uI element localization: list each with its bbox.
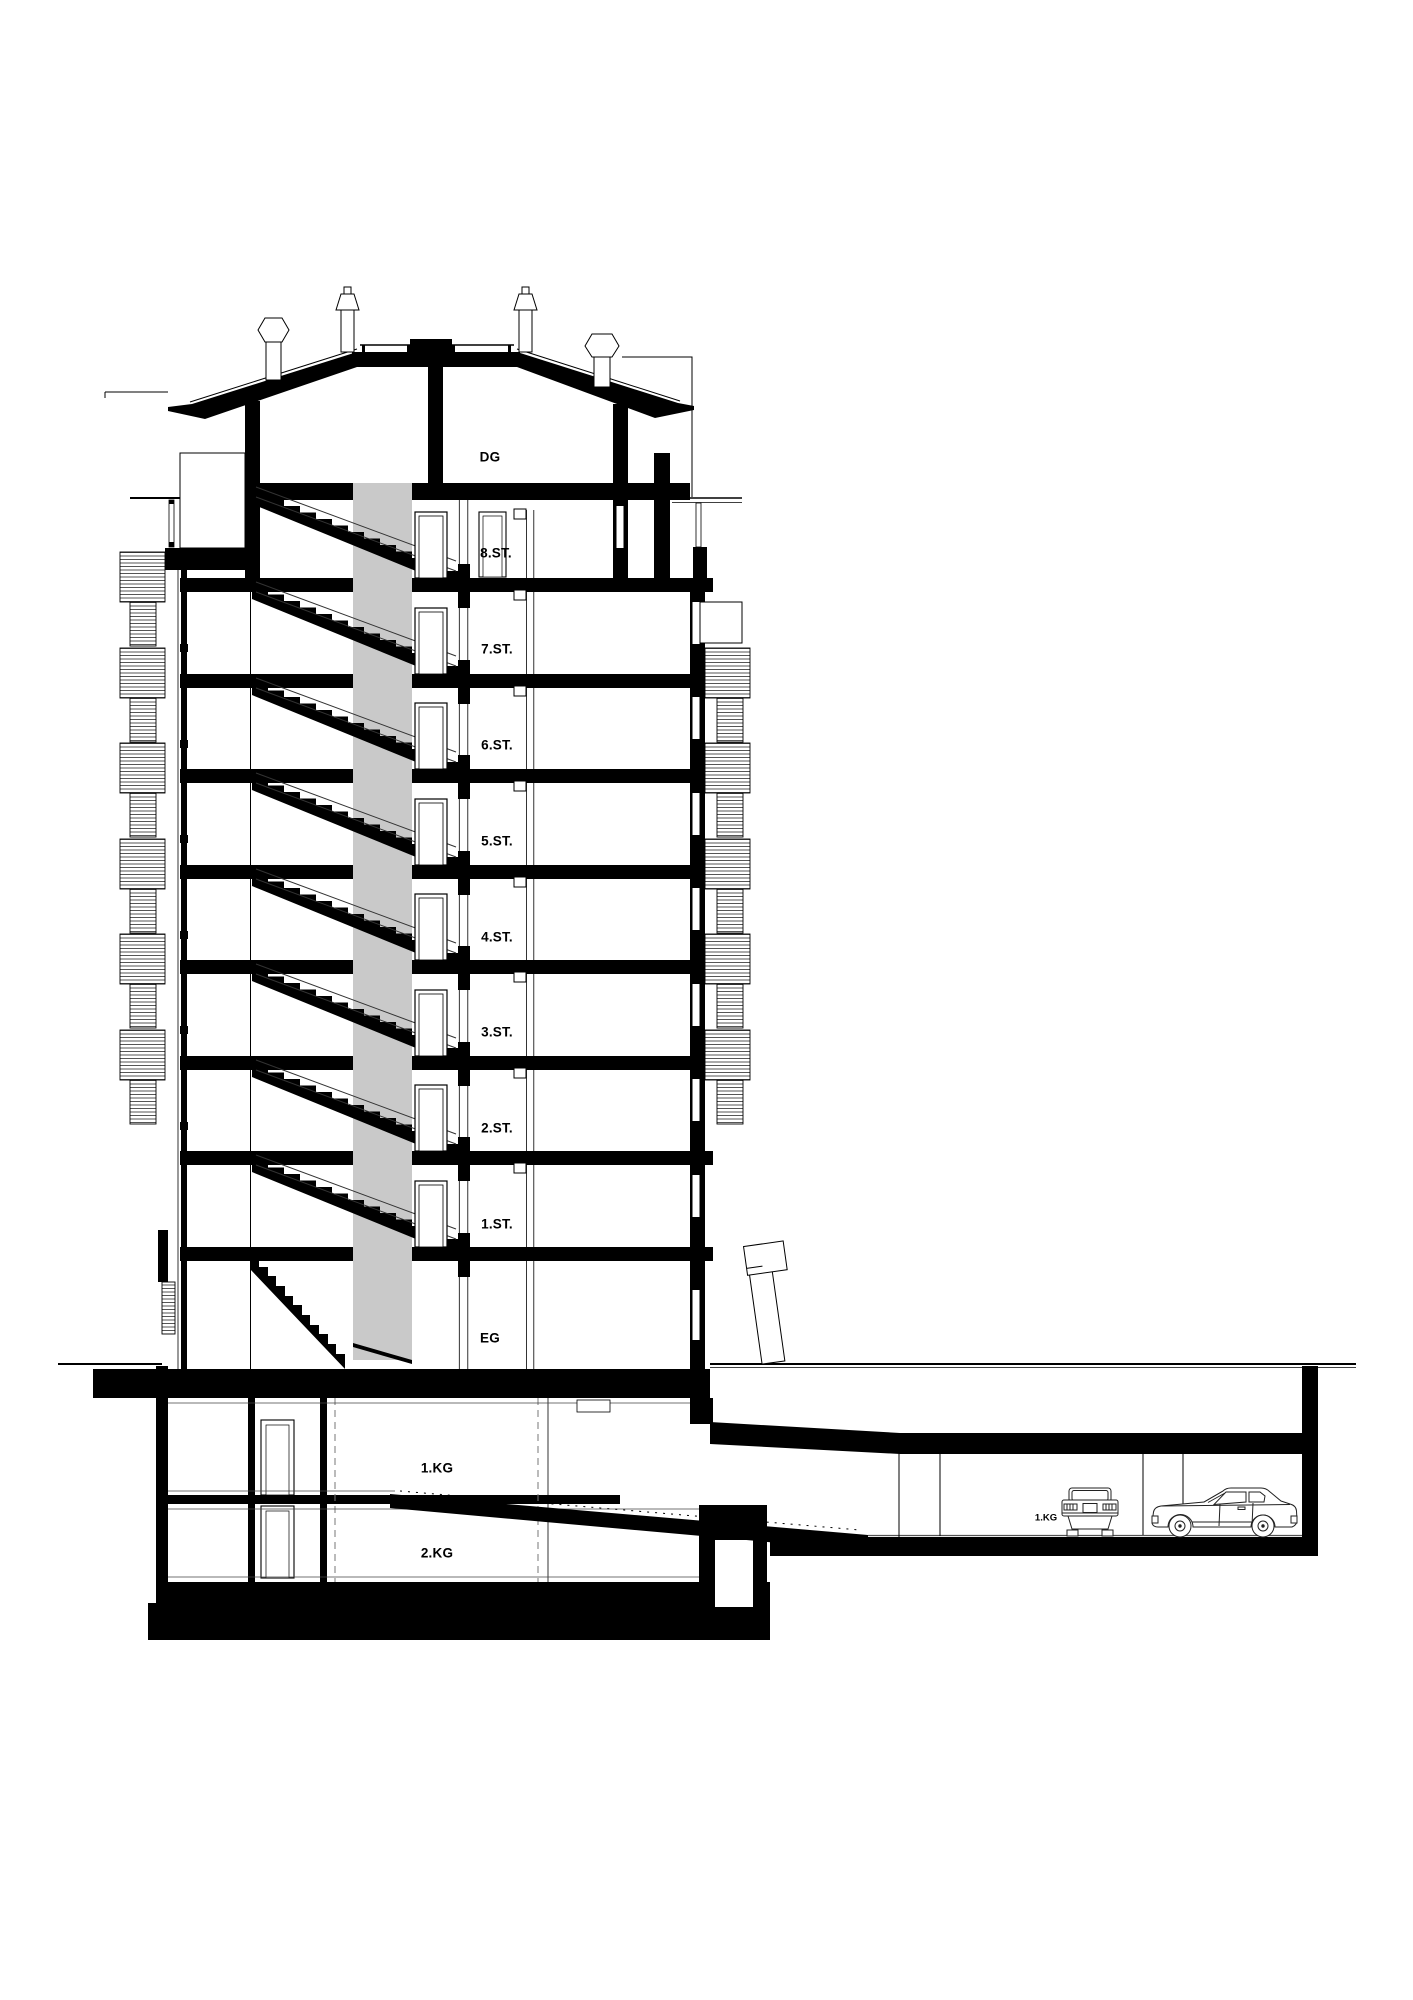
floor-label-1kg: 1.KG — [421, 1461, 453, 1476]
floor-label-2st: 2.ST. — [481, 1121, 513, 1136]
roof-hatch — [410, 339, 452, 352]
roof-vent-icon — [336, 287, 359, 352]
car-side-icon — [1152, 1488, 1297, 1537]
roof-vent-icon — [514, 287, 537, 352]
balcony-shutter-boxes — [120, 552, 165, 1124]
garage-ceiling — [710, 1422, 1318, 1454]
basement-grate — [162, 1282, 175, 1334]
floor-label-6st: 6.ST. — [481, 738, 513, 753]
foundation — [148, 1582, 770, 1640]
floor-label-eg: EG — [480, 1331, 500, 1346]
building-section-linework — [0, 0, 1413, 2000]
garage-level-label: 1.KG — [1035, 1513, 1057, 1524]
floor-label-8st: 8.ST. — [480, 546, 512, 561]
balcony-shutter-boxes — [705, 648, 750, 1124]
top-balcony-box — [180, 453, 245, 548]
facade-windows — [617, 506, 700, 1340]
chimney-icon — [258, 318, 289, 380]
floor-label-5st: 5.ST. — [481, 834, 513, 849]
right-facade — [622, 357, 750, 1124]
section-drawing-page: DG 8.ST. 7.ST. 6.ST. 5.ST. 4.ST. 3.ST. 2… — [0, 0, 1413, 2000]
garage-right-wall — [1302, 1366, 1318, 1556]
parking-sign — [744, 1241, 800, 1364]
floor-label-2kg: 2.KG — [421, 1546, 453, 1561]
floor-label-1st: 1.ST. — [481, 1217, 513, 1232]
floor-label-dg: DG — [480, 450, 501, 465]
garage-floor — [770, 1537, 1318, 1556]
car-rear-icon — [1062, 1488, 1118, 1536]
roof-duct — [654, 453, 670, 578]
floor-label-4st: 4.ST. — [481, 930, 513, 945]
floor-label-7st: 7.ST. — [481, 642, 513, 657]
stair-core — [250, 483, 534, 1369]
floor-label-3st: 3.ST. — [481, 1025, 513, 1040]
